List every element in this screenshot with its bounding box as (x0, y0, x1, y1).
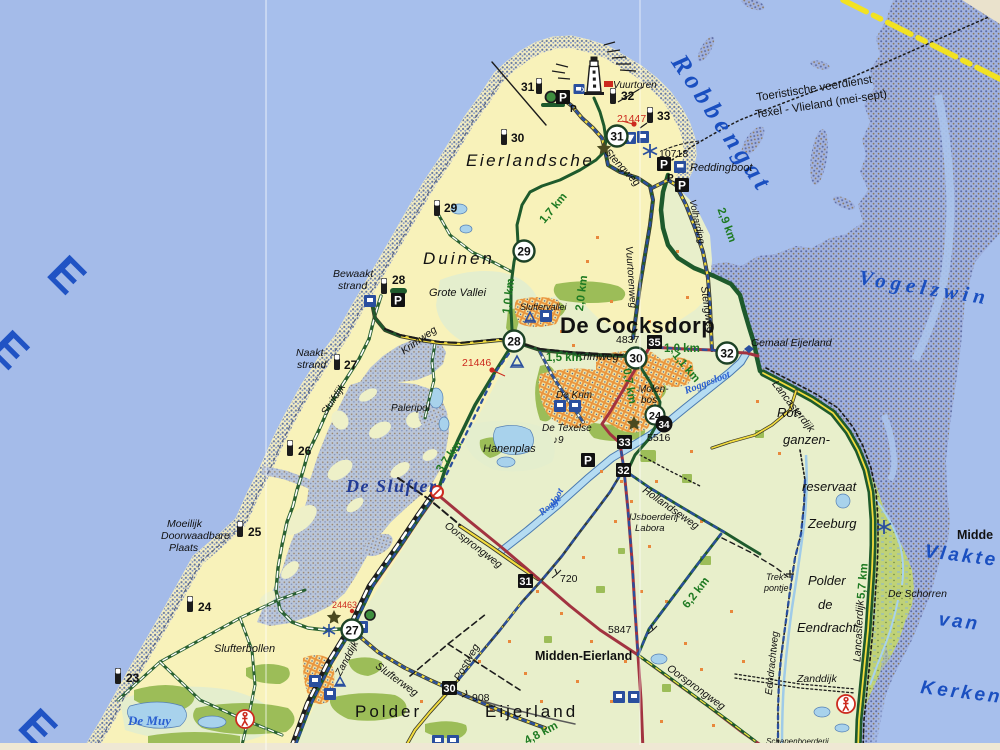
svg-text:31: 31 (521, 80, 535, 94)
svg-text:Paleripol: Paleripol (391, 403, 431, 414)
svg-text:21446: 21446 (462, 357, 491, 369)
svg-text:♪9: ♪9 (553, 435, 564, 446)
svg-text:Eendracht: Eendracht (797, 620, 858, 635)
svg-text:4837: 4837 (616, 334, 640, 346)
svg-text:Gemaal Eijerland: Gemaal Eijerland (751, 337, 833, 349)
svg-text:24: 24 (198, 600, 212, 614)
svg-text:35: 35 (648, 337, 660, 349)
svg-text:26: 26 (298, 444, 312, 458)
svg-text:27: 27 (345, 624, 359, 638)
svg-text:Grote Vallei: Grote Vallei (429, 287, 487, 299)
svg-text:Doorwaadbare: Doorwaadbare (161, 530, 230, 542)
svg-text:Naakt-: Naakt- (296, 347, 327, 359)
svg-text:Eierlandsche: Eierlandsche (466, 151, 594, 170)
svg-text:31: 31 (519, 576, 531, 588)
svg-text:bos: bos (641, 395, 657, 406)
svg-text:P: P (667, 173, 674, 184)
svg-text:29: 29 (517, 245, 531, 259)
svg-text:Krimweg: Krimweg (576, 351, 620, 363)
svg-text:Midden-Eierland: Midden-Eierland (535, 649, 632, 663)
svg-text:24463: 24463 (332, 600, 357, 610)
svg-text:34: 34 (658, 420, 670, 431)
svg-text:30: 30 (443, 683, 455, 695)
svg-text:Eijerland: Eijerland (485, 702, 578, 721)
svg-text:28: 28 (507, 335, 521, 349)
svg-text:908: 908 (472, 692, 490, 704)
svg-text:5847: 5847 (608, 624, 632, 636)
svg-text:Plaats: Plaats (169, 542, 199, 554)
svg-text:28: 28 (392, 273, 406, 287)
svg-text:32: 32 (621, 89, 635, 103)
svg-text:720: 720 (560, 573, 578, 585)
svg-text:ganzen-: ganzen- (783, 432, 831, 447)
svg-text:32: 32 (617, 465, 629, 477)
svg-text:10718: 10718 (659, 148, 688, 160)
svg-text:P: P (570, 104, 577, 115)
svg-text:Moeilijk: Moeilijk (167, 518, 203, 530)
svg-text:strand: strand (338, 280, 368, 292)
svg-text:31: 31 (610, 130, 624, 144)
svg-text:strand: strand (297, 359, 327, 371)
svg-text:33: 33 (618, 437, 630, 449)
svg-text:Molen-: Molen- (638, 384, 669, 395)
svg-text:De Krim: De Krim (556, 390, 592, 401)
svg-text:Polder: Polder (808, 573, 846, 588)
svg-text:33: 33 (657, 109, 671, 123)
svg-text:Midde: Midde (957, 528, 993, 542)
svg-text:Duinen: Duinen (423, 249, 495, 268)
svg-text:5516: 5516 (647, 432, 671, 444)
svg-text:pontje: pontje (763, 583, 789, 593)
svg-text:De Schorren: De Schorren (888, 588, 947, 600)
svg-text:21447: 21447 (617, 113, 646, 125)
svg-text:Trek-: Trek- (766, 572, 786, 582)
svg-text:Vuurtoren: Vuurtoren (613, 80, 657, 91)
svg-text:29: 29 (444, 201, 458, 215)
svg-text:25: 25 (248, 525, 262, 539)
svg-text:Polder: Polder (355, 702, 422, 721)
svg-text:De Muy: De Muy (127, 713, 171, 728)
svg-text:Zanddijk: Zanddijk (796, 673, 837, 685)
svg-text:De Slufter: De Slufter (345, 476, 438, 496)
svg-text:Zeeburg: Zeeburg (807, 516, 857, 531)
svg-text:reservaat: reservaat (802, 479, 858, 494)
svg-text:De Texelse: De Texelse (542, 423, 592, 434)
svg-text:Hanenplas: Hanenplas (483, 443, 536, 455)
svg-text:23: 23 (126, 671, 140, 685)
svg-text:1,5 km: 1,5 km (546, 352, 582, 364)
svg-text:Bewaakt: Bewaakt (333, 268, 374, 280)
svg-text:Reddingboot: Reddingboot (690, 162, 753, 174)
svg-text:32: 32 (720, 347, 734, 361)
svg-text:30: 30 (511, 131, 525, 145)
svg-text:de: de (818, 597, 832, 612)
svg-text:Sluftervallei: Sluftervallei (520, 302, 568, 312)
svg-text:27: 27 (344, 358, 358, 372)
